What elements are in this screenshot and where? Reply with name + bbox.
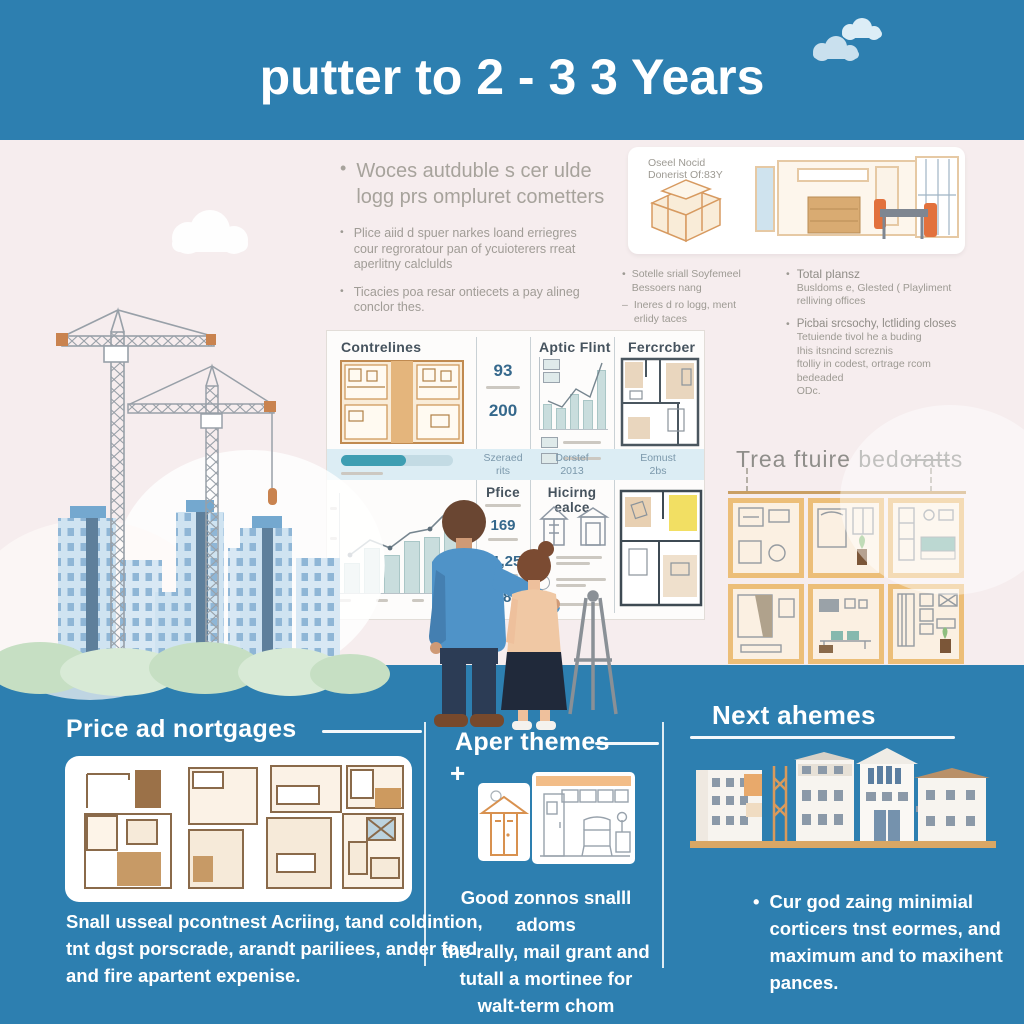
price-trend-chart (339, 493, 462, 594)
stat-169: 169 (476, 517, 530, 534)
footer-col2-paragraph: Good zonnos snalll adoms the-rally, mail… (432, 884, 660, 1024)
room-frame-3 (888, 498, 964, 578)
floorplan-yellow-illustration (619, 489, 703, 607)
band-label-c4: Eomust2bs (614, 452, 702, 478)
stat-200: 200 (476, 401, 530, 421)
hanging-rail (728, 491, 966, 494)
note-b2-title: Picbai srcsochy, lctliding closes (797, 318, 957, 332)
model-room-card: Oseel Nocid Donerist Of:83Y (628, 147, 965, 254)
room-frame-4 (728, 584, 804, 664)
room-card (532, 772, 635, 864)
comparison-table: Contrelines (326, 330, 705, 620)
band-label-c3: Dcrstef2013 (530, 452, 614, 478)
intro-b2-l2: cour regroratour pan of ycuioterers rrea… (354, 242, 577, 258)
intro-b3-l1: Ticacies poa resar ontiecets a pay aline… (354, 285, 580, 301)
aptic-flint-chart (539, 357, 608, 430)
footer-col1-paragraph: Snall usseal pcontnest Acriing, tand col… (66, 908, 483, 989)
note-a2-l2: erlidy taces (634, 313, 736, 327)
intro-b2-l1: Plice aiid d spuer narkes loand erriegre… (354, 226, 577, 242)
stat-93: 93 (476, 361, 530, 381)
city-buildings-illustration (58, 500, 340, 668)
tower-crane-icon (56, 310, 216, 668)
bullet-icon: • (340, 285, 344, 316)
bullet-icon: • (786, 318, 790, 399)
stat-block: 93 200 (476, 361, 530, 421)
note-a1-l1: Sotelle sriall Soyfemeel (632, 268, 741, 282)
note-b1-s2: relliving offices (797, 295, 952, 309)
x-axis-labels (339, 599, 461, 602)
title-rule (595, 742, 659, 745)
bullet-icon: • (340, 158, 346, 210)
house-frame-and-room-illustration (628, 147, 965, 254)
intro-primary-line1: Woces autduble s cer ulde (356, 158, 604, 184)
progress-bar (341, 455, 453, 466)
title-underline (690, 736, 955, 739)
note-b2-s3: ftolliy in codest, ortrage rcom (797, 358, 957, 372)
bullet-icon: • (786, 268, 790, 309)
intro-primary-line2: logg prs ompluret cometters (356, 184, 604, 210)
note-a2-l1: Ineres d ro logg, ment (634, 299, 736, 313)
col1-header: Contrelines (341, 339, 421, 355)
stat-1125: 11,25 (476, 553, 530, 570)
title-rule (322, 730, 422, 733)
room-frame-2 (808, 498, 884, 578)
intro-b2-l3: aperlitny calclulds (354, 257, 577, 273)
circle-bullet-list (535, 553, 606, 612)
bullet-icon: • (340, 226, 344, 273)
note-b2-s5: ODc. (797, 385, 957, 399)
intro-bullets: • Woces autduble s cer ulde logg prs omp… (340, 158, 640, 316)
hanger-wire (746, 468, 748, 492)
footer-divider (662, 722, 664, 968)
floorplan-tan-illustration (339, 359, 465, 445)
floorplans-illustration (65, 756, 412, 902)
buildings-row-illustration (688, 748, 1000, 852)
notes-column-left: • Sotelle sriall Soyfemeel Bessoers nang… (622, 268, 777, 326)
footer-col1-title: Price ad nortgages (66, 715, 296, 744)
col4-header: Fercrcber (628, 339, 695, 355)
hanger-wire (930, 468, 932, 492)
room-frame-1 (728, 498, 804, 578)
footer-col2-title: Aper themes (455, 728, 610, 757)
note-b2-s2: Ihis itsncind screznis (797, 345, 957, 359)
title-dash (906, 459, 950, 461)
note-b2-s1: Tetuiende tivol he a buding (797, 331, 957, 345)
note-b1-title: Total plansz (797, 268, 952, 282)
bullet-icon: • (753, 888, 759, 996)
footer-col3-title: Next ahemes (712, 700, 876, 731)
room-frame-5 (808, 584, 884, 664)
floorplan-dark-illustration (620, 357, 700, 447)
note-a1-l2: Bessoers nang (632, 282, 741, 296)
infographic-poster: putter to 2 - 3 3 Years • Woces autduble… (0, 0, 1024, 1024)
tower-crane-icon (128, 366, 277, 668)
bullet-icon: • (622, 268, 626, 295)
footer-col3-bullet: • Cur god zaing minimial corticers tnst … (753, 888, 1003, 996)
stat-98: 98 (476, 589, 530, 606)
door-card (478, 783, 530, 861)
intro-b3-l2: conclor thes. (354, 300, 580, 316)
room-frame-6 (888, 584, 964, 664)
note-b2-s4: bedeaded (797, 372, 957, 386)
floorplans-card (65, 756, 412, 902)
pfice-title: Pfice (476, 485, 530, 500)
notes-column-right: • Total plansz Busldoms e, Glested ( Pla… (786, 268, 1006, 399)
note-b1-s1: Busldoms e, Glested ( Playliment (797, 282, 952, 296)
tiny-caption (341, 472, 383, 475)
page-title: putter to 2 - 3 3 Years (0, 48, 1024, 106)
plus-icon: + (450, 758, 465, 789)
col3-header: Aptic Flint (539, 339, 611, 355)
footer-divider (424, 722, 426, 966)
band-label-c2: Szeraedrits (476, 452, 530, 478)
price-stat-block: Pfice 169 11,25 98 (476, 485, 530, 606)
dash-icon: – (622, 299, 628, 326)
trend-line-overlay (340, 493, 462, 593)
cloud-icon (172, 210, 248, 254)
house-sketches (537, 503, 611, 547)
